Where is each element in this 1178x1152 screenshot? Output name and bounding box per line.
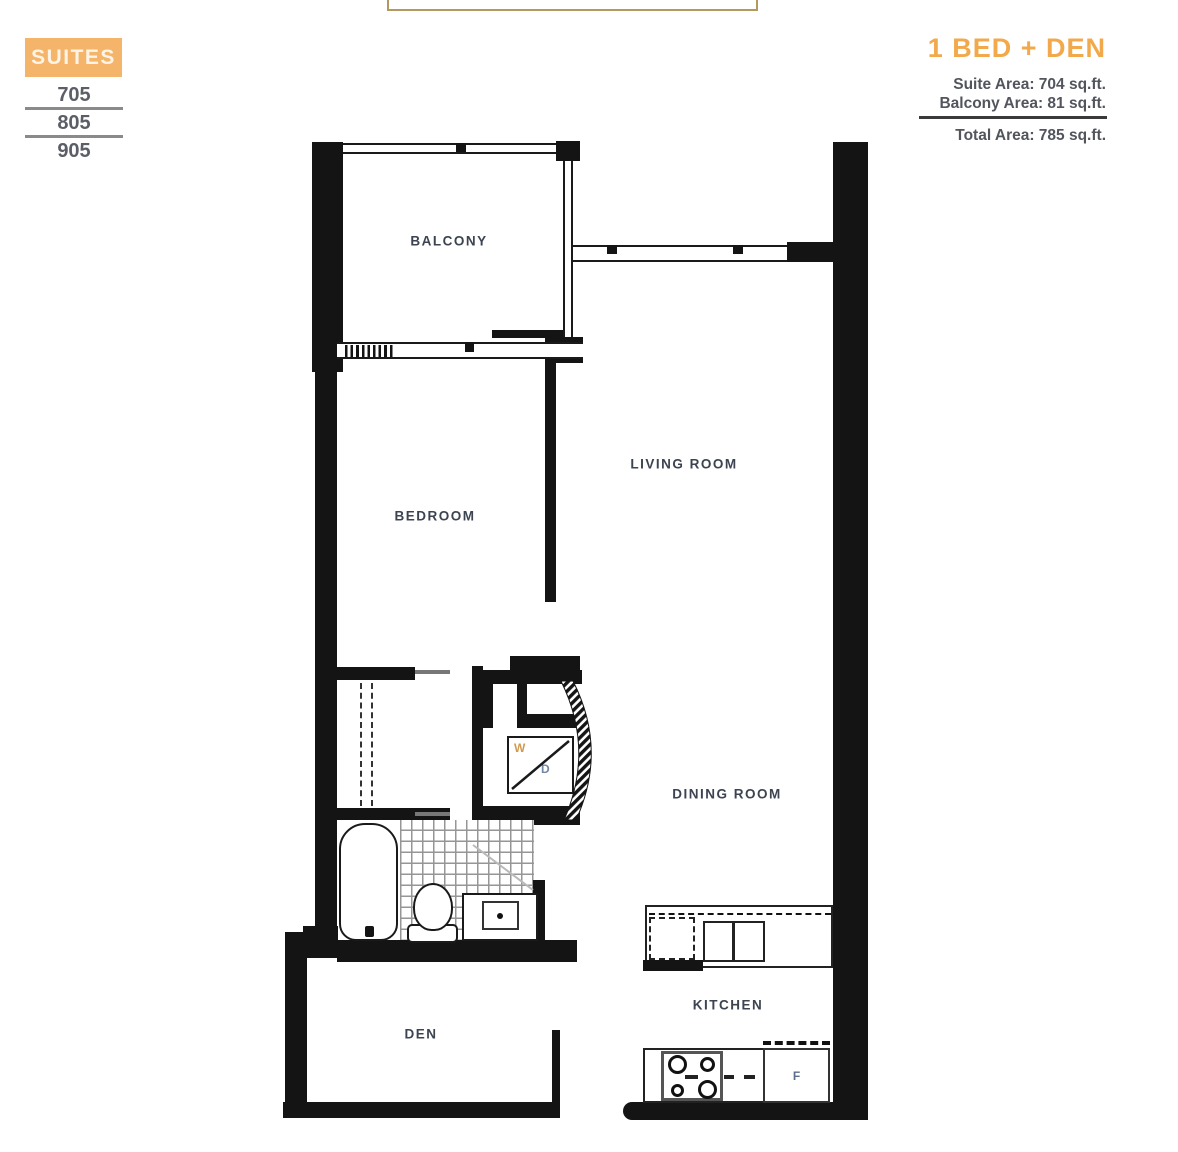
balcony-right-railing bbox=[563, 143, 573, 342]
suites-header-badge: SUITES bbox=[25, 38, 122, 77]
wall-window-stub bbox=[492, 330, 563, 338]
counter-dash bbox=[685, 1075, 698, 1079]
counter-end-panel bbox=[643, 960, 703, 971]
window-mullion bbox=[733, 245, 743, 254]
tub-faucet bbox=[365, 926, 374, 937]
wall-nook-left bbox=[480, 682, 493, 728]
toilet-bowl bbox=[413, 883, 453, 931]
dishwasher-dashed bbox=[649, 917, 695, 960]
wall-den-junction bbox=[303, 926, 338, 958]
living-room-window bbox=[573, 245, 787, 262]
room-label-den: DEN bbox=[404, 1027, 437, 1042]
window-hatch-panel bbox=[345, 345, 393, 357]
room-label-balcony: BALCONY bbox=[410, 234, 487, 249]
washer-label: W bbox=[514, 741, 525, 755]
wall-bathroom-bottom bbox=[337, 940, 577, 962]
room-label-bedroom: BEDROOM bbox=[395, 509, 476, 524]
room-label-dining-room: DINING ROOM bbox=[672, 787, 782, 802]
window-mullion bbox=[607, 245, 617, 254]
closet-rod-dashed bbox=[360, 683, 362, 806]
suite-number-905: 905 bbox=[25, 140, 123, 163]
wall-den-left bbox=[285, 932, 307, 1118]
window-mullion bbox=[465, 342, 474, 352]
wall-left bbox=[315, 355, 337, 945]
floor-plan-page: SUITES 705 805 905 1 BED + DEN Suite Are… bbox=[0, 0, 1178, 1152]
closet-front-line bbox=[415, 812, 450, 816]
burner-small bbox=[700, 1057, 715, 1072]
wall-railing-stub bbox=[787, 242, 835, 262]
total-area-text: Total Area: 785 sq.ft. bbox=[955, 127, 1106, 145]
dryer-label: D bbox=[541, 762, 550, 776]
balcony-corner-top bbox=[556, 141, 580, 161]
wall-wd-top-upper bbox=[510, 656, 580, 670]
bathtub bbox=[339, 823, 398, 941]
counter-dash bbox=[724, 1075, 734, 1079]
suite-list-divider bbox=[25, 107, 123, 110]
room-label-kitchen: KITCHEN bbox=[693, 998, 764, 1013]
burner-small bbox=[671, 1084, 684, 1097]
suite-area-text: Suite Area: 704 sq.ft. bbox=[953, 76, 1106, 94]
suite-list-divider bbox=[25, 135, 123, 138]
wall-bedroom-living-divider bbox=[545, 338, 556, 602]
fridge: F bbox=[763, 1048, 830, 1103]
suite-number-705: 705 bbox=[25, 84, 123, 107]
area-summary-divider bbox=[919, 116, 1107, 119]
upper-cabinet-dashed-line bbox=[649, 913, 831, 915]
suite-number-805: 805 bbox=[25, 112, 123, 135]
closet-rod-dashed bbox=[371, 683, 373, 806]
wall-nook-bottom bbox=[517, 714, 580, 728]
wall-den-right-partial bbox=[552, 1030, 560, 1118]
burner-large bbox=[698, 1080, 717, 1099]
wall-balcony-left-column bbox=[312, 142, 343, 372]
wall-den-bottom bbox=[283, 1102, 560, 1118]
closet-front-line bbox=[415, 670, 450, 674]
wall-kitchen-bottom bbox=[623, 1102, 868, 1120]
title-box-partial bbox=[387, 0, 758, 11]
wall-right bbox=[833, 142, 868, 1120]
sink-drain bbox=[497, 913, 503, 919]
wall-closet-top bbox=[335, 667, 415, 680]
sink-divider bbox=[732, 923, 735, 960]
overlay-graphics bbox=[0, 0, 1178, 1152]
balcony-area-text: Balcony Area: 81 sq.ft. bbox=[939, 95, 1106, 113]
plan-name-title: 1 BED + DEN bbox=[928, 33, 1106, 64]
counter-dash bbox=[744, 1075, 755, 1079]
fridge-cabinet-dashed-line bbox=[763, 1041, 830, 1045]
burner-large bbox=[668, 1055, 687, 1074]
room-label-living-room: LIVING ROOM bbox=[630, 457, 737, 472]
railing-mullion bbox=[456, 143, 466, 152]
